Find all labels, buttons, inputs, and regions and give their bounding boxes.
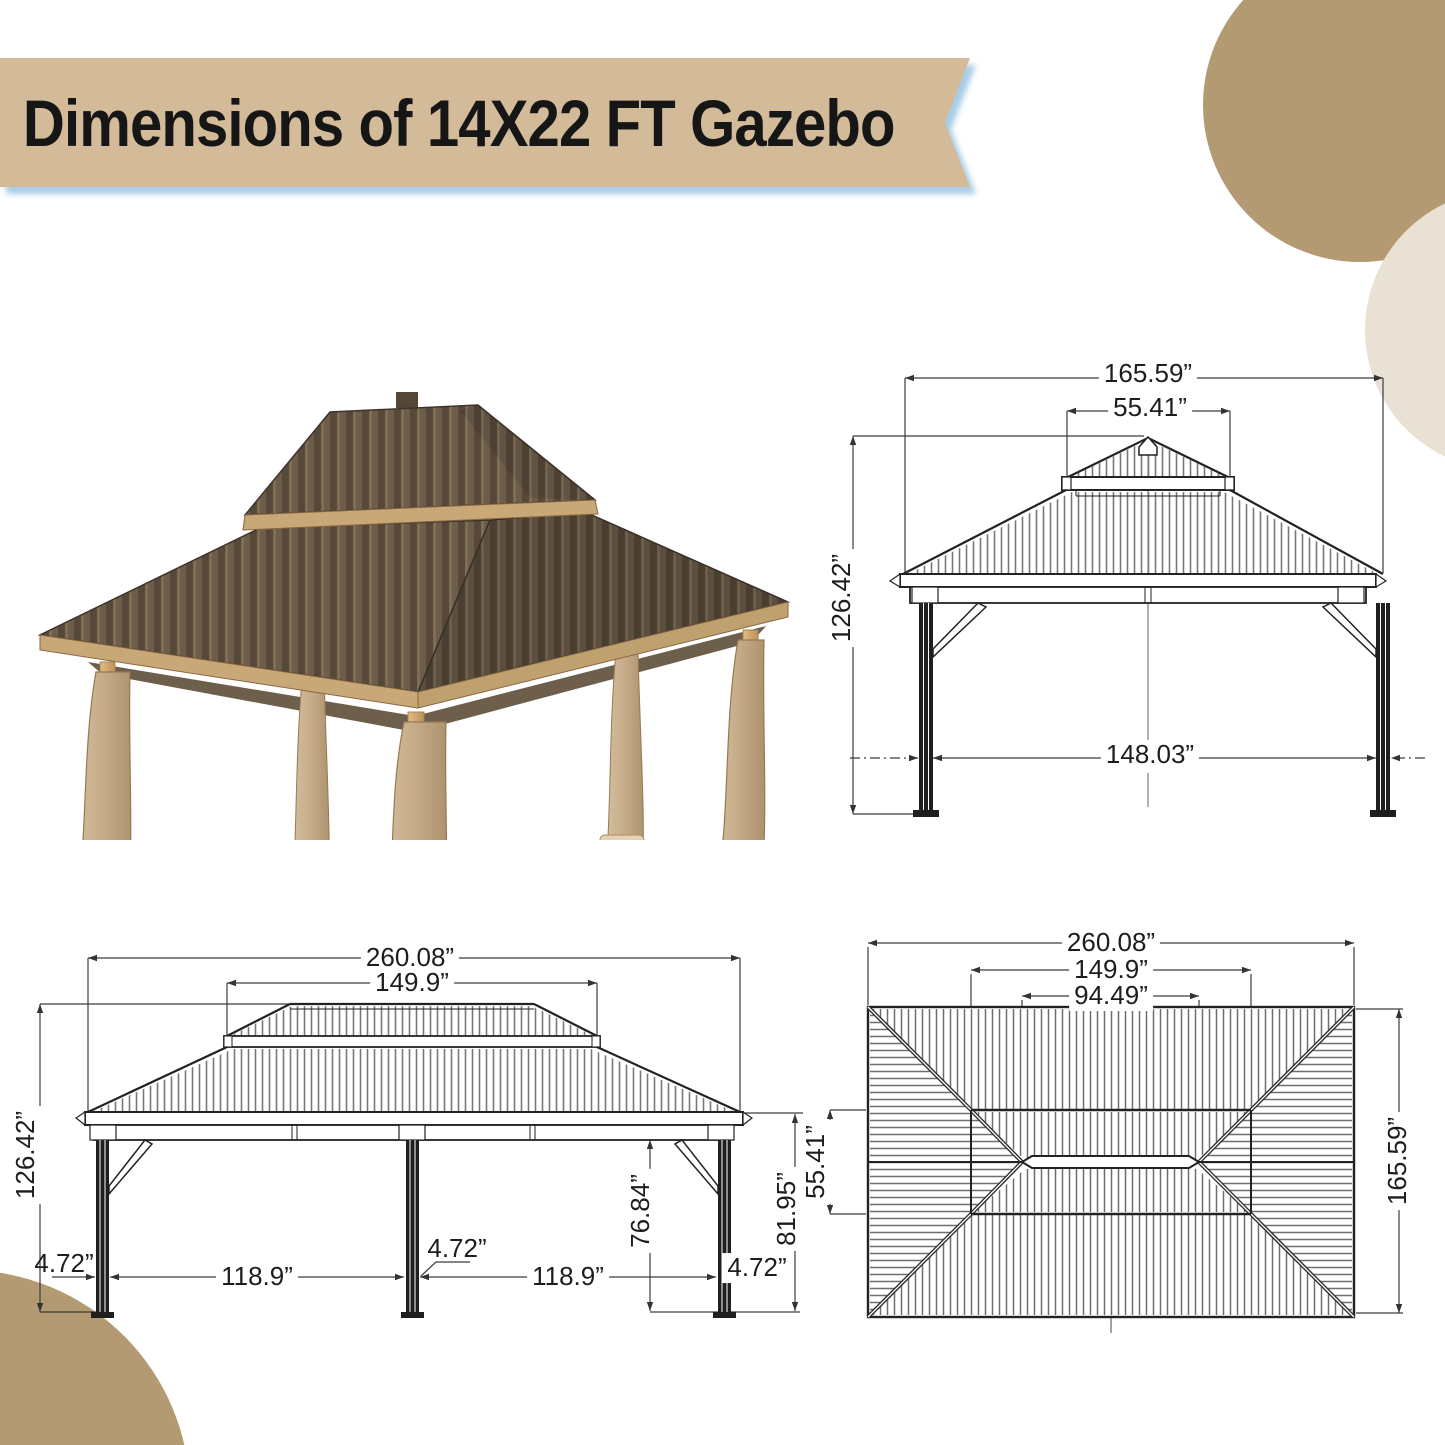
- page-title: Dimensions of 14X22 FT Gazebo: [0, 85, 895, 161]
- decor-circle-top-right-tan: [1203, 0, 1445, 262]
- side-bay-right-label: 118.9”: [527, 1262, 609, 1292]
- gazebo-dimensions-infographic: Dimensions of 14X22 FT Gazebo: [0, 0, 1445, 1445]
- side-post-width-right-label: 4.72”: [722, 1253, 791, 1283]
- side-eave-height-label: 81.95”: [772, 1167, 802, 1251]
- front-canopy-width-label: 55.41”: [1108, 393, 1192, 423]
- front-elevation-drawing: 165.59” 55.41” 126.42” 148.03”: [830, 355, 1445, 825]
- top-canopy-depth-label: 55.41”: [801, 1120, 831, 1204]
- side-under-beam-height-label: 76.84”: [626, 1169, 656, 1253]
- front-post-spacing-label: 148.03”: [1101, 740, 1199, 770]
- top-ridge-length-label: 94.49”: [1069, 981, 1153, 1011]
- title-ribbon: Dimensions of 14X22 FT Gazebo: [0, 58, 970, 187]
- side-post-width-left-label: 4.72”: [29, 1249, 98, 1279]
- gazebo-photo: [10, 340, 810, 840]
- top-view-drawing: 260.08” 149.9” 94.49” 55.41” 165.59”: [800, 935, 1445, 1355]
- side-bay-left-label: 118.9”: [216, 1262, 298, 1292]
- top-total-depth-label: 165.59”: [1383, 1112, 1413, 1210]
- side-height-label: 126.42”: [11, 1106, 41, 1204]
- side-elevation-art: [0, 940, 820, 1340]
- side-elevation-drawing: 260.08” 149.9” 126.42” 4.72” 118.9” 4.72…: [0, 940, 820, 1340]
- front-total-width-label: 165.59”: [1099, 359, 1197, 389]
- gazebo-photo-art: [10, 340, 810, 840]
- top-roof-plan: [868, 1007, 1354, 1317]
- front-height-label: 126.42”: [827, 549, 857, 647]
- side-post-width-middle-label: 4.72”: [422, 1234, 491, 1264]
- title-ribbon-shape: Dimensions of 14X22 FT Gazebo: [0, 58, 970, 187]
- side-canopy-width-label: 149.9”: [370, 968, 454, 998]
